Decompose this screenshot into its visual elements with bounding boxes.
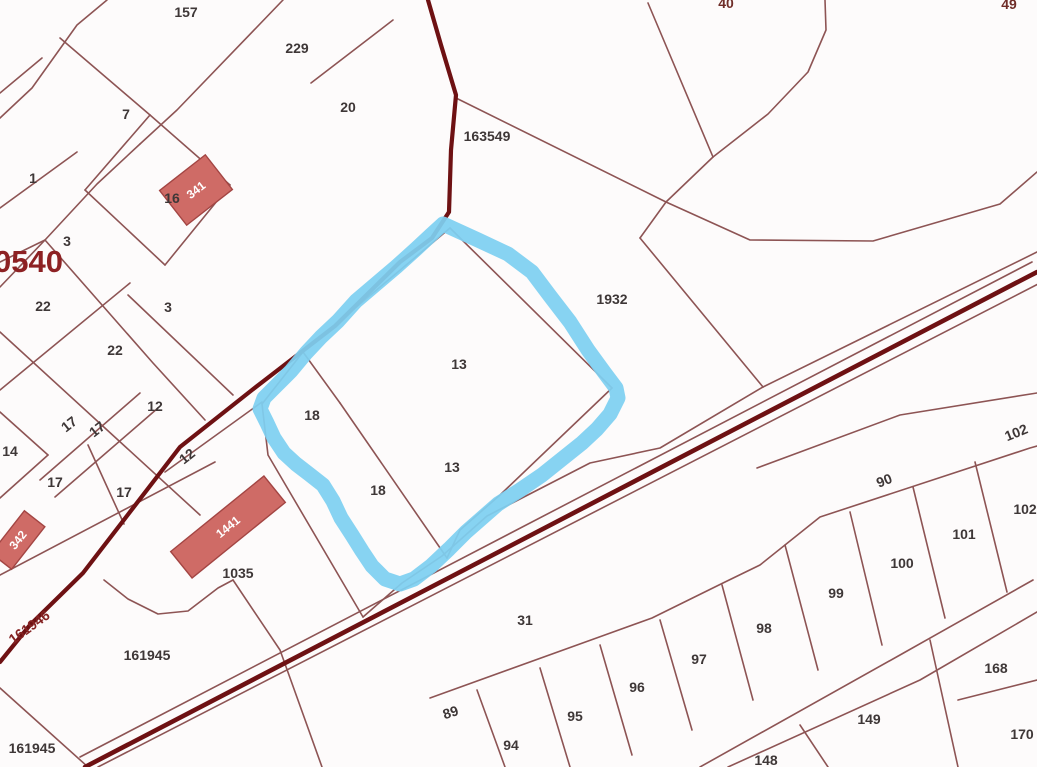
parcel-boundary-line <box>728 612 1037 767</box>
parcel-number-label: 18 <box>370 482 386 498</box>
parcel-number-label: 99 <box>828 585 844 601</box>
parcel-boundary-line <box>975 462 1007 592</box>
parcel-number-label: 96 <box>629 679 645 695</box>
parcel-boundary-line <box>660 620 692 730</box>
parcel-number-label: 101 <box>952 526 976 542</box>
parcel-boundary-line <box>700 580 1033 767</box>
parcel-boundary-line <box>450 228 612 388</box>
parcel-number-label: 161945 <box>124 647 171 663</box>
cadastral-map: 3411441342054015722972016354911632232212… <box>0 0 1037 767</box>
parcel-boundary-line <box>0 455 48 498</box>
parcel-number-label: 229 <box>285 40 309 56</box>
parcel-number-label: 94 <box>503 737 519 753</box>
parcel-boundary-line <box>85 190 165 265</box>
parcel-number-label: 100 <box>890 555 914 571</box>
parcel-number-label: 3 <box>63 233 71 249</box>
parcel-boundary-line <box>104 580 233 614</box>
parcel-number-label: 20 <box>340 99 356 115</box>
parcel-number-label: 13 <box>444 459 460 475</box>
parcel-boundary-line <box>785 545 818 670</box>
parcel-boundary-line <box>800 725 828 767</box>
parcel-boundary-line <box>0 152 77 208</box>
parcel-boundary-line <box>363 387 763 617</box>
parcel-boundary-line <box>763 252 1037 387</box>
parcel-boundary-line <box>600 645 632 755</box>
parcel-number-label: 22 <box>35 298 51 314</box>
parcel-number-label: 13 <box>451 356 467 372</box>
parcel-number-label: 40 <box>718 0 734 11</box>
parcel-number-label: 95 <box>567 708 583 724</box>
road-north-south <box>0 0 456 662</box>
parcel-number-label: 3 <box>164 299 172 315</box>
parcel-number-label: 1035 <box>222 565 253 581</box>
parcel-boundary-line <box>540 668 570 767</box>
parcel-boundary-line <box>850 512 882 645</box>
parcel-boundary-line <box>0 283 130 390</box>
parcel-number-label: 161945 <box>9 740 56 756</box>
parcel-boundary-line <box>913 487 945 618</box>
parcel-number-label: 49 <box>1001 0 1017 12</box>
parcel-number-label: 89 <box>441 702 461 722</box>
parcel-number-label: 1932 <box>596 291 627 307</box>
parcel-boundary-line <box>666 157 713 202</box>
parcel-number-label: 14 <box>2 443 18 459</box>
parcel-number-label: 12 <box>147 398 163 414</box>
parcel-boundary-line <box>648 3 713 157</box>
cadastral-map-viewport: 3411441342054015722972016354911632232212… <box>0 0 1037 767</box>
parcel-boundary-line <box>0 58 42 93</box>
parcel-number-label: 31 <box>517 612 533 628</box>
parcel-boundary-line <box>0 0 107 118</box>
parcel-boundary-line <box>713 0 826 157</box>
parcel-number-label: 17 <box>116 484 132 500</box>
parcel-boundary-line <box>722 585 753 700</box>
quarter-number-label: 0540 <box>0 244 63 279</box>
parcel-boundary-line <box>45 240 205 420</box>
parcel-number-label: 22 <box>107 342 123 358</box>
parcel-number-label: 17 <box>58 413 80 435</box>
parcel-number-label: 7 <box>122 106 130 122</box>
parcel-number-label: 163549 <box>464 128 511 144</box>
parcel-number-label: 90 <box>874 470 895 491</box>
parcel-boundary-line <box>311 20 393 83</box>
parcel-boundary-line <box>640 202 666 238</box>
parcel-boundary-line <box>666 172 1037 241</box>
parcel-number-label: 102 <box>1002 420 1030 444</box>
parcel-number-label: 16 <box>164 190 180 206</box>
parcel-boundary-line <box>140 0 283 144</box>
parcel-number-label: 149 <box>857 711 881 727</box>
parcel-boundary-line <box>930 640 958 767</box>
parcel-boundary-line <box>233 580 322 767</box>
parcel-boundary-line <box>757 393 1037 468</box>
parcel-boundary-line <box>640 238 763 387</box>
parcel-number-label: 102 <box>1013 501 1037 517</box>
parcel-boundary-line <box>165 402 262 472</box>
parcel-boundary-line <box>958 680 1037 700</box>
parcel-boundary-line <box>128 295 233 395</box>
parcel-number-label: 148 <box>754 752 778 767</box>
parcel-number-label: 17 <box>47 474 63 490</box>
selected-parcel-outline <box>260 224 618 584</box>
parcel-number-label: 1 <box>29 170 37 186</box>
parcel-number-label: 168 <box>984 660 1008 676</box>
parcel-number-label: 161946 <box>5 607 52 648</box>
parcel-boundary-line <box>456 98 666 202</box>
parcel-number-label: 157 <box>174 4 198 20</box>
parcel-number-label: 170 <box>1010 726 1034 742</box>
parcel-boundary-line <box>477 690 505 767</box>
parcel-boundary-line <box>85 115 150 190</box>
parcel-number-label: 98 <box>756 620 772 636</box>
parcel-boundary-line <box>60 38 150 115</box>
parcel-number-label: 18 <box>304 407 320 423</box>
parcel-number-label: 97 <box>691 651 707 667</box>
